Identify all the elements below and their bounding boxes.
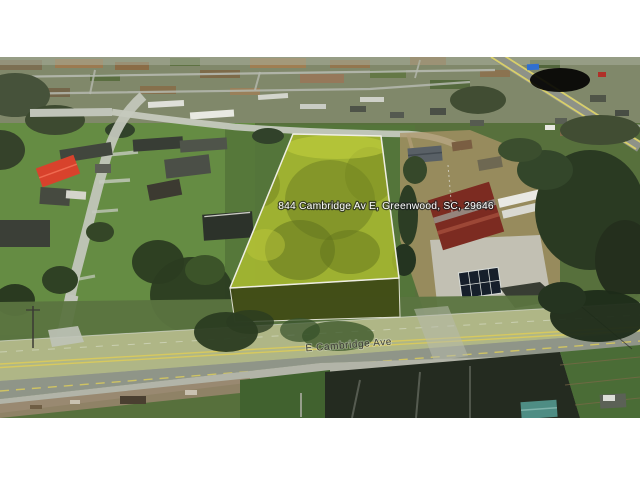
debris [120,396,146,404]
tree-blob [252,128,284,144]
driveway [92,210,118,212]
tree-blob [498,138,542,162]
letterbox-bottom [0,418,640,480]
house-roof [590,95,606,102]
texture-blob [320,230,380,274]
house-roof [390,112,404,118]
house-roof [603,395,615,401]
side-road [30,112,112,113]
white-car [545,125,555,130]
tree-blob [280,318,320,342]
tree-blob [538,282,586,314]
address-label: 844 Cambridge Av E, Greenwood, SC, 29646 [278,201,494,212]
house-roof [350,106,366,112]
blue-truck [527,64,539,71]
tree-blob [42,266,78,294]
aerial-photo: 844 Cambridge Av E, Greenwood, SC, 29646… [0,53,640,419]
house-roof [0,220,50,247]
solar-grid-structure [458,267,501,298]
debris [30,405,42,409]
tree-blob [132,240,184,284]
tree-blob [560,115,640,145]
letterbox-top [0,0,640,57]
house-roof [39,187,70,206]
debris [70,400,80,404]
house-roof [615,110,629,116]
tree-blob [403,156,427,184]
shed-roof [95,164,111,173]
tree-blob [86,222,114,242]
debris [185,390,197,395]
texture-blob [285,135,389,159]
horizon-haze [0,57,640,65]
deck [66,190,87,199]
tree-blob [450,86,506,114]
house-roof [430,108,446,115]
house-roof [470,120,484,126]
aerial-listing-photo: 844 Cambridge Av E, Greenwood, SC, 29646… [0,0,640,480]
driveway [99,180,130,182]
mobile-home [360,97,384,102]
tree-blob [185,255,225,285]
mobile-home [300,104,326,109]
dark-building [202,211,254,240]
tree-blob [530,68,590,92]
screenshot-root: 844 Cambridge Av E, Greenwood, SC, 29646… [0,0,640,480]
field-patch [300,74,344,83]
tree-blob [194,312,258,352]
red-car [598,72,606,77]
teal-roof-house [520,400,557,419]
tree-blob [398,185,418,245]
